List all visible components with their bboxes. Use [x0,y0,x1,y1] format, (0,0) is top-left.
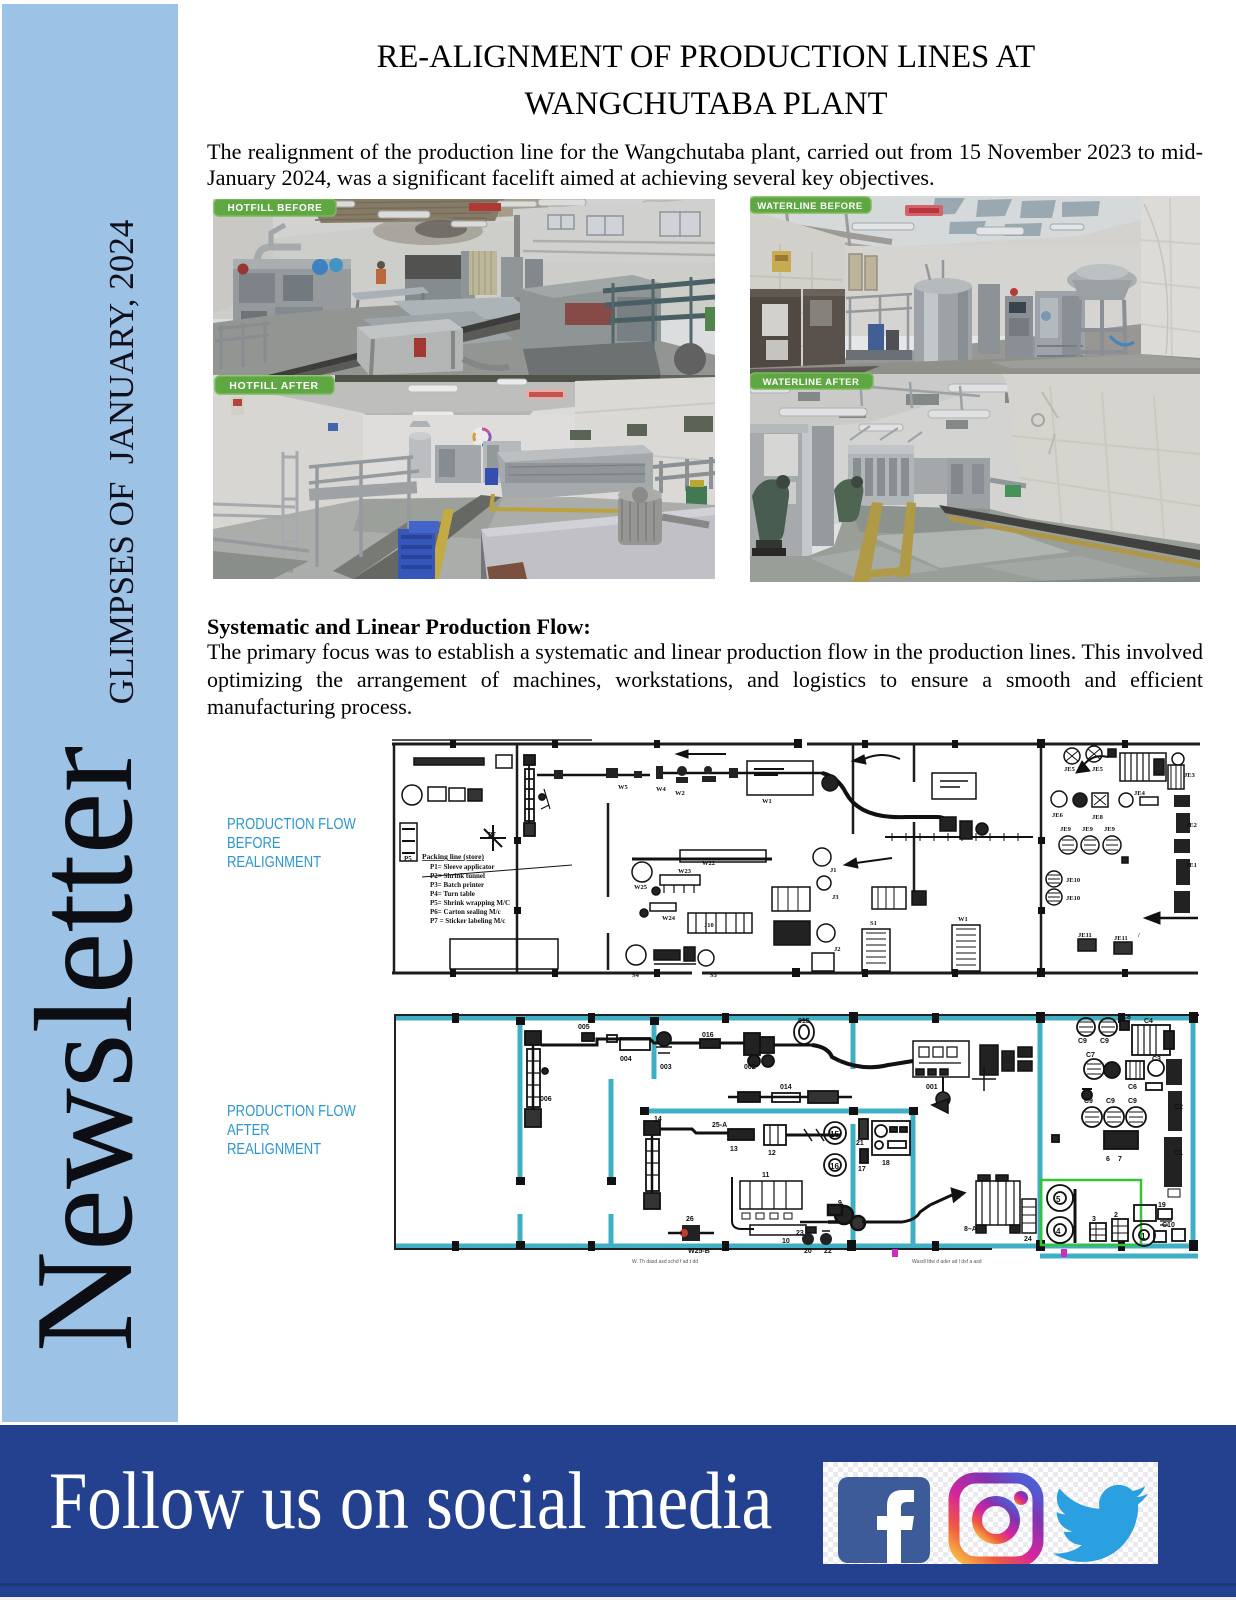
svg-text:6: 6 [1106,1156,1110,1163]
svg-text:S3: S3 [710,972,718,979]
svg-text:W25: W25 [634,884,648,891]
svg-text:HOTFILL AFTER: HOTFILL AFTER [229,380,318,392]
svg-text:23: 23 [796,1230,804,1237]
svg-text:21: 21 [856,1140,864,1147]
svg-text:J1: J1 [830,867,837,874]
svg-text:/: / [1137,932,1140,939]
svg-text:Wasdl fdw d ader ad l dsf a as: Wasdl fdw d ader ad l dsf a asd [912,1259,982,1265]
svg-text:P3= Batch printer: P3= Batch printer [430,881,484,889]
svg-text:JE9: JE9 [1104,826,1116,833]
svg-text:C4: C4 [1144,1018,1153,1025]
svg-text:C7: C7 [1086,1052,1095,1059]
svg-text:C9: C9 [1084,1098,1093,1105]
svg-text:25-A: 25-A [712,1122,727,1129]
svg-text:006: 006 [540,1096,552,1103]
svg-text:14: 14 [654,1116,662,1123]
svg-text:J3: J3 [832,894,839,901]
svg-text:C1: C1 [1174,1150,1183,1157]
svg-text:13: 13 [730,1146,738,1153]
svg-text:JE4: JE4 [1134,790,1146,797]
svg-text:J2: J2 [834,946,841,953]
svg-text:5: 5 [1056,1195,1061,1204]
svg-text:P4= Turn table: P4= Turn table [430,890,475,898]
svg-text:JE10: JE10 [1066,877,1080,884]
svg-text:S1: S1 [870,920,877,927]
svg-text:JE5: JE5 [1064,766,1076,773]
svg-text:15: 15 [830,1130,839,1139]
svg-text:P7: P7 [488,831,496,839]
svg-text:1: 1 [1141,1232,1146,1241]
svg-text:12: 12 [768,1150,776,1157]
svg-text:C6: C6 [1128,1084,1137,1091]
svg-text:24: 24 [1024,1236,1032,1243]
svg-text:HOTFILL BEFORE: HOTFILL BEFORE [228,203,323,214]
svg-text:WATERLINE AFTER: WATERLINE AFTER [763,377,860,388]
svg-text:W1: W1 [958,916,968,923]
svg-text:JE3: JE3 [1184,772,1196,779]
svg-text:015: 015 [798,1018,810,1025]
svg-text:002: 002 [744,1064,756,1071]
svg-text:4: 4 [1056,1227,1061,1236]
svg-text:C10: C10 [1162,1222,1175,1229]
svg-text:JE9: JE9 [1082,826,1094,833]
svg-text:C9: C9 [1106,1098,1115,1105]
svg-text:C8: C8 [1122,1014,1131,1021]
svg-text:Packing line (store): Packing line (store) [422,852,484,861]
svg-text:W4: W4 [656,786,667,793]
svg-text:JE1: JE1 [1186,862,1197,869]
svg-text:001: 001 [926,1084,938,1091]
svg-text:3: 3 [1092,1216,1096,1223]
svg-text:005: 005 [578,1024,590,1031]
svg-text:20: 20 [804,1248,812,1255]
svg-text:W25-B: W25-B [688,1248,710,1255]
svg-text:10: 10 [782,1238,790,1245]
svg-text:W24: W24 [662,915,676,922]
svg-text:16: 16 [830,1162,839,1171]
svg-text:JE8: JE8 [1092,814,1104,821]
svg-text:JE11: JE11 [1078,932,1092,939]
svg-text:P7 = Sticker labeling M/c: P7 = Sticker labeling M/c [430,917,505,925]
svg-text:P5= Shrink wrapping M/C: P5= Shrink wrapping M/C [430,899,510,907]
svg-text:P2= Shrink tunnel: P2= Shrink tunnel [430,872,485,880]
svg-text:JE10: JE10 [1066,895,1080,902]
svg-text:J10: J10 [704,922,714,929]
svg-text:C9: C9 [1128,1098,1137,1105]
svg-text:P1= Sleeve applicator: P1= Sleeve applicator [430,863,495,871]
svg-text:P6= Carton sealing M/c: P6= Carton sealing M/c [430,908,501,916]
svg-text:26: 26 [686,1216,694,1223]
svg-text:C9: C9 [1100,1038,1109,1045]
svg-text:C2: C2 [1174,1104,1183,1111]
svg-text:W1: W1 [762,798,772,805]
svg-text:W. Th dasd asd schd f ad t dd: W. Th dasd asd schd f ad t dd [632,1259,698,1265]
svg-text:S4: S4 [632,972,640,979]
svg-text:014: 014 [780,1084,792,1091]
svg-text:P5: P5 [404,855,412,863]
svg-text:004: 004 [620,1056,632,1063]
svg-text:016: 016 [702,1032,714,1039]
svg-text:JE2: JE2 [1186,822,1197,829]
svg-text:W5: W5 [618,784,629,791]
svg-text:7: 7 [1118,1156,1122,1163]
svg-text:W23: W23 [678,868,692,875]
svg-text:17: 17 [858,1166,866,1173]
svg-text:C3: C3 [1152,1056,1161,1063]
svg-text:JE9: JE9 [1060,826,1072,833]
svg-text:9: 9 [838,1200,842,1207]
svg-text:19: 19 [1158,1202,1166,1209]
svg-text:W2: W2 [675,790,685,797]
svg-text:8–A: 8–A [964,1226,977,1233]
svg-text:2: 2 [1114,1212,1118,1219]
svg-text:C9: C9 [1078,1038,1087,1045]
svg-text:22: 22 [824,1248,832,1255]
svg-text:W22: W22 [702,860,715,867]
svg-text:WATERLINE BEFORE: WATERLINE BEFORE [757,201,862,212]
svg-text:JE6: JE6 [1052,812,1064,819]
svg-text:JE5: JE5 [1092,766,1104,773]
svg-text:JE11: JE11 [1114,935,1128,942]
svg-text:11: 11 [762,1172,770,1179]
svg-text:003: 003 [660,1064,672,1071]
svg-text:18: 18 [882,1160,890,1167]
